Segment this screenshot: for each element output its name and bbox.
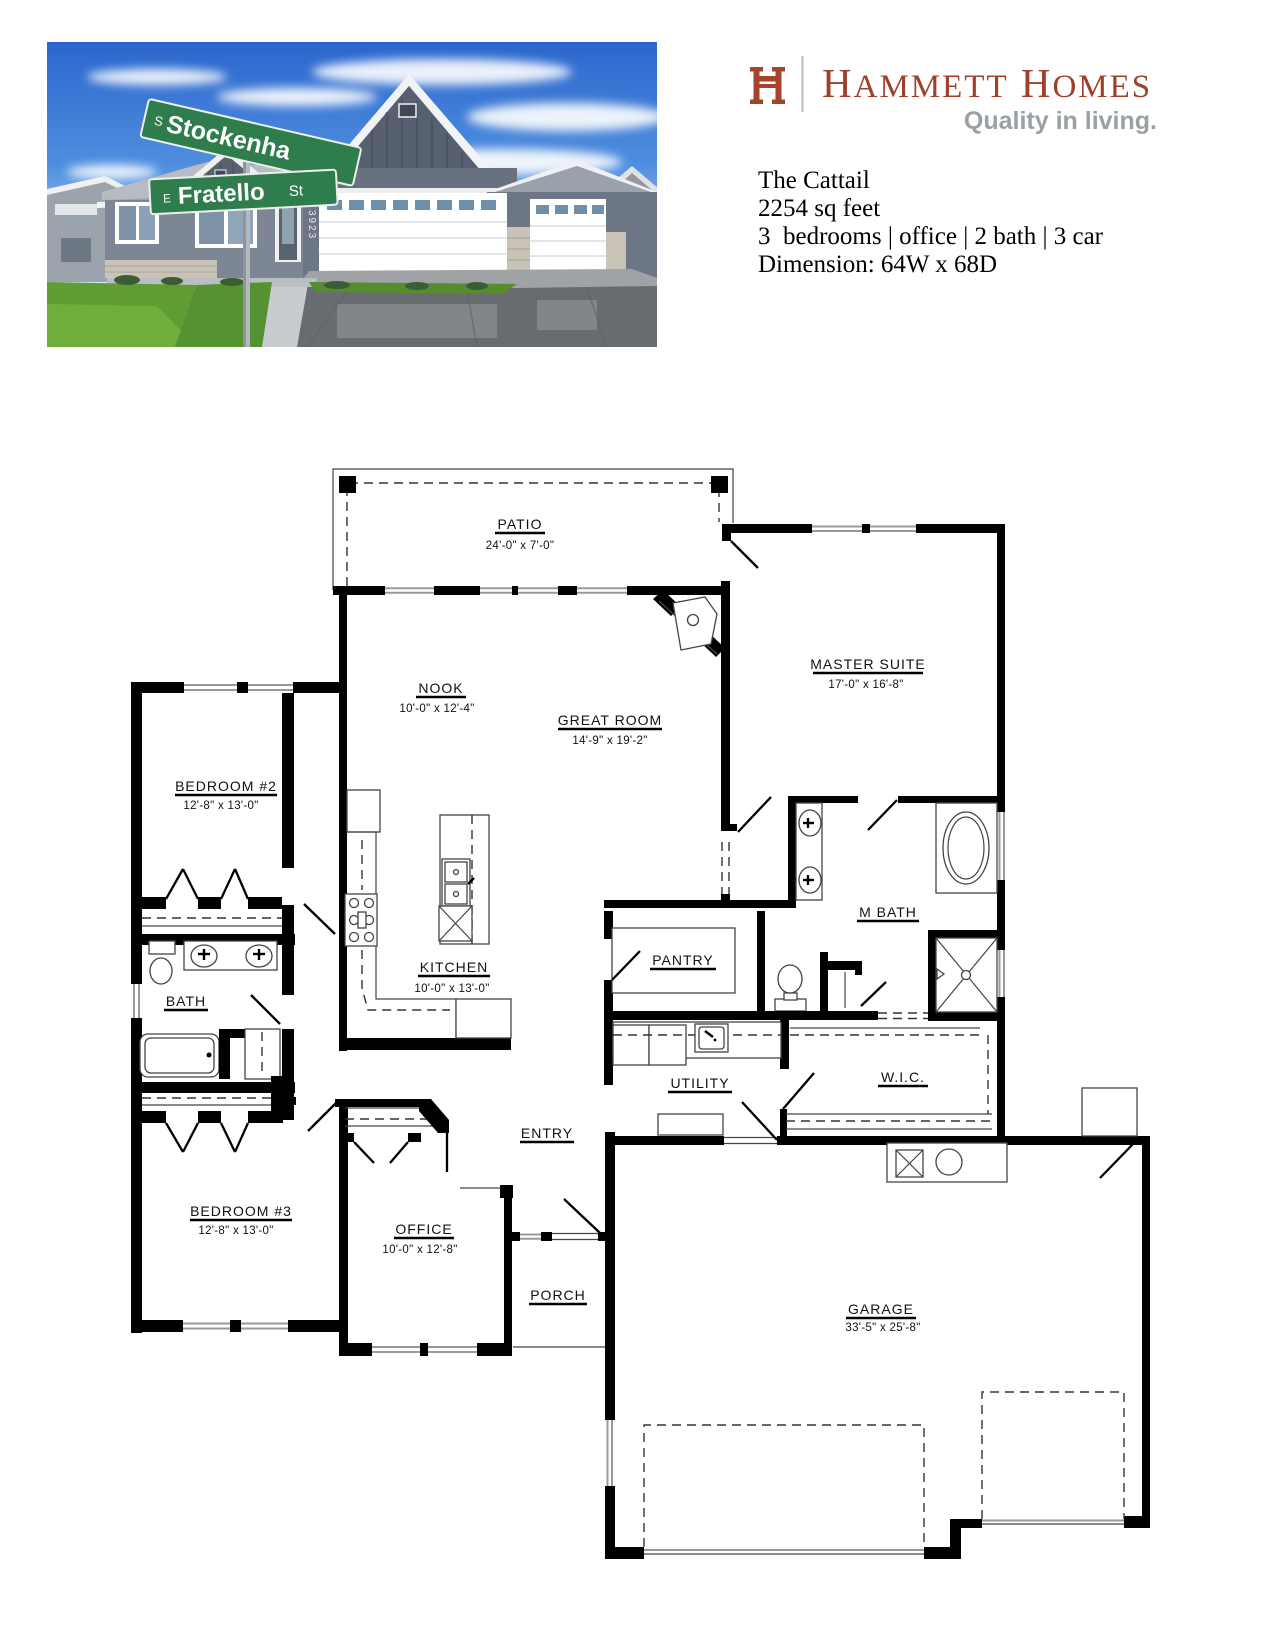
svg-text:10'-0" x 12'-4": 10'-0" x 12'-4" — [399, 703, 474, 715]
svg-text:33'-5" x 25'-8": 33'-5" x 25'-8" — [845, 1322, 920, 1334]
svg-text:OFFICE: OFFICE — [395, 1221, 452, 1237]
svg-text:10'-0" x 13'-0": 10'-0" x 13'-0" — [414, 983, 489, 995]
svg-text:BATH: BATH — [166, 993, 206, 1009]
svg-text:BEDROOM #3: BEDROOM #3 — [190, 1203, 292, 1219]
svg-text:MASTER SUITE: MASTER SUITE — [810, 656, 925, 672]
svg-text:ENTRY: ENTRY — [521, 1125, 573, 1141]
svg-text:24'-0" x 7'-0": 24'-0" x 7'-0" — [486, 540, 555, 552]
svg-text:GREAT ROOM: GREAT ROOM — [558, 712, 662, 728]
svg-text:14'-9" x 19'-2": 14'-9" x 19'-2" — [572, 735, 647, 747]
svg-text:17'-0" x 16'-8": 17'-0" x 16'-8" — [828, 679, 903, 691]
svg-text:12'-8" x 13'-0": 12'-8" x 13'-0" — [198, 1225, 273, 1237]
svg-text:KITCHEN: KITCHEN — [420, 959, 488, 975]
svg-text:UTILITY: UTILITY — [670, 1075, 729, 1091]
svg-text:W.I.C.: W.I.C. — [881, 1069, 925, 1085]
svg-text:PANTRY: PANTRY — [652, 952, 714, 968]
svg-text:PATIO: PATIO — [498, 516, 543, 532]
svg-text:PORCH: PORCH — [530, 1287, 586, 1303]
svg-text:NOOK: NOOK — [418, 680, 463, 696]
svg-text:BEDROOM #2: BEDROOM #2 — [175, 778, 277, 794]
svg-text:12'-8" x 13'-0": 12'-8" x 13'-0" — [183, 800, 258, 812]
svg-text:GARAGE: GARAGE — [848, 1301, 914, 1317]
svg-text:10'-0" x 12'-8": 10'-0" x 12'-8" — [382, 1244, 457, 1256]
svg-text:M BATH: M BATH — [859, 904, 917, 920]
